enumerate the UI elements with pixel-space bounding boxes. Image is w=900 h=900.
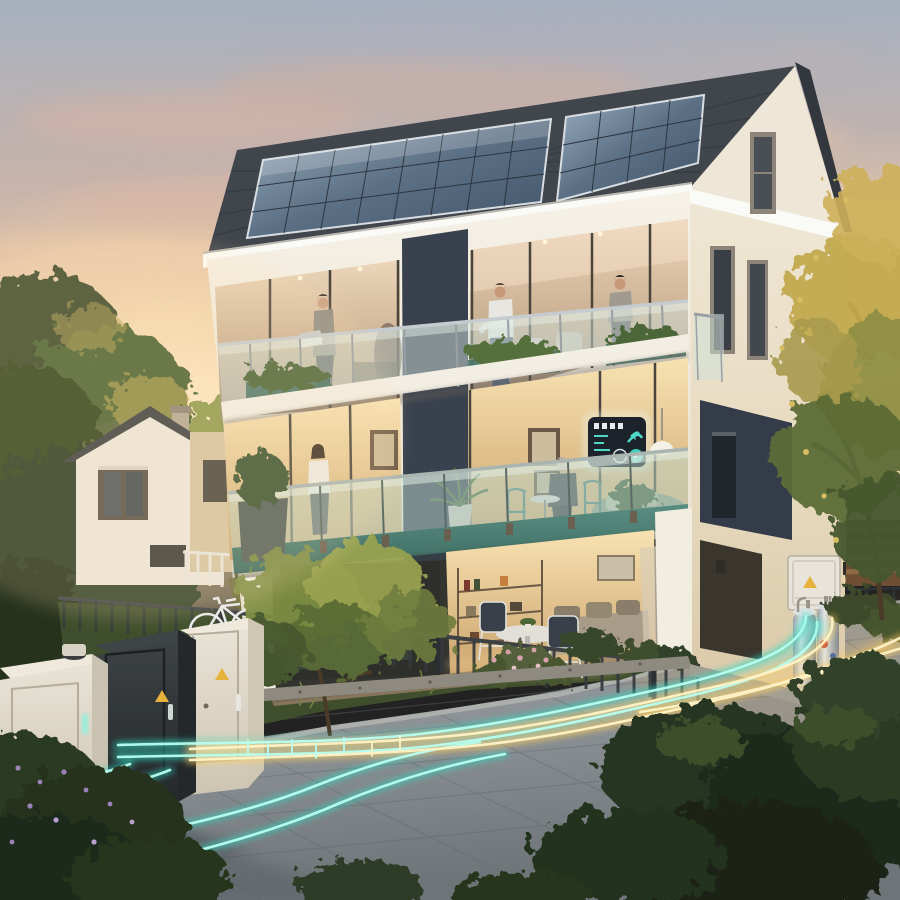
cabinet-handle (236, 694, 241, 711)
side-window-upper-2 (747, 260, 768, 360)
ground-dark-panel (700, 540, 762, 660)
scene-image (0, 0, 900, 900)
gable-window (750, 132, 776, 214)
keyhole (204, 704, 209, 709)
side-window-lower (712, 432, 736, 518)
wall-art (598, 556, 634, 580)
juliet-balcony (694, 314, 724, 382)
connection-glow (794, 619, 830, 637)
corner-pillar (655, 508, 692, 668)
smart-home-render (0, 0, 900, 900)
wall-sconce-2 (716, 560, 725, 573)
cabinet-handle-lit (168, 704, 173, 720)
glowing-handle (82, 714, 88, 734)
